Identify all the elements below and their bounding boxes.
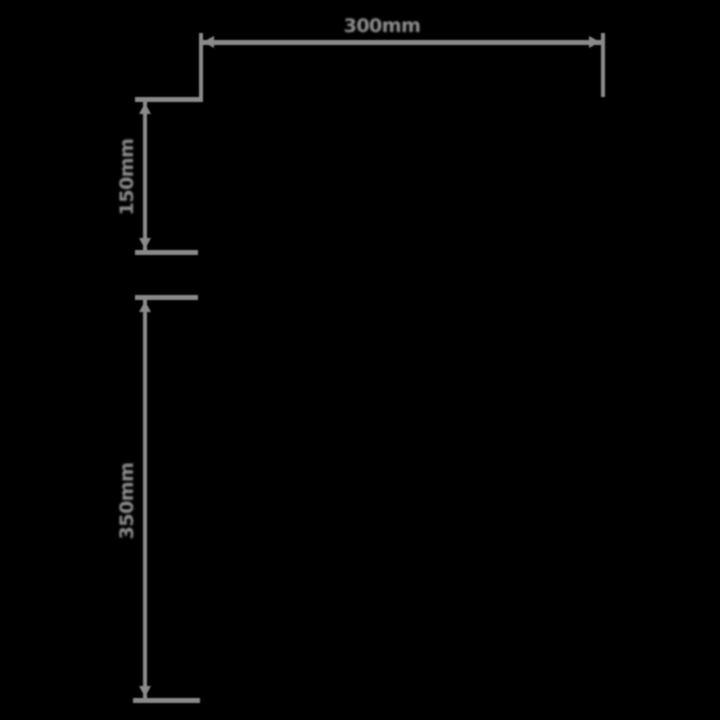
lower-dimension-bottom-tick-line (133, 698, 200, 703)
lower-dimension-label: 350mm (116, 463, 138, 540)
dimension-diagram: 300mm 150mm 350mm (0, 0, 720, 720)
dimension-arrow-up-icon (139, 301, 151, 312)
upper-dimension-line (143, 101, 147, 252)
dimension-arrow-down-icon (139, 238, 151, 249)
upper-dimension-label: 150mm (116, 139, 138, 216)
dimension-drawing-layer: 300mm 150mm 350mm (0, 0, 720, 720)
dimension-arrow-left-icon (203, 36, 214, 48)
dimension-arrow-down-icon (139, 686, 151, 697)
upper-dimension-bottom-tick-line (135, 250, 198, 255)
top-dimension-label: 300mm (344, 15, 421, 37)
dimension-arrow-right-icon (589, 36, 600, 48)
lower-dimension-line (143, 299, 147, 700)
dimension-arrow-up-icon (139, 103, 151, 114)
top-dimension-line (200, 40, 605, 45)
top-dimension-right-extension-line (601, 33, 605, 97)
